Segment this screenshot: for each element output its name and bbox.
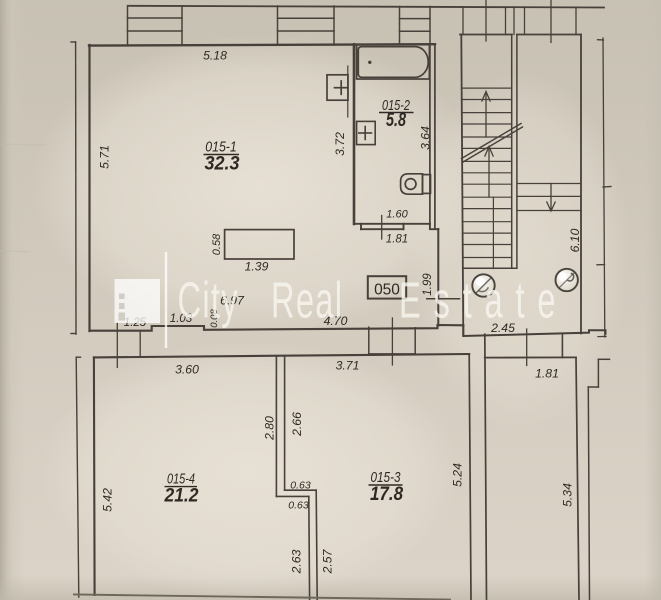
svg-text:1.81: 1.81 — [386, 234, 408, 246]
svg-text:1.60: 1.60 — [386, 209, 408, 221]
svg-text:3.71: 3.71 — [336, 359, 360, 373]
svg-text:5.18: 5.18 — [203, 49, 227, 63]
svg-text:2.66: 2.66 — [290, 412, 304, 437]
svg-text:2.63: 2.63 — [290, 549, 304, 574]
svg-text:0.63: 0.63 — [290, 480, 311, 492]
svg-text:5.24: 5.24 — [451, 463, 465, 487]
svg-text:050: 050 — [374, 282, 400, 299]
svg-text:1.39: 1.39 — [245, 260, 269, 274]
svg-text:5.34: 5.34 — [561, 483, 575, 507]
svg-text:City: City — [178, 272, 239, 329]
svg-text:Estate: Estate — [399, 272, 568, 329]
svg-text:5.42: 5.42 — [101, 488, 115, 512]
svg-text:6.10: 6.10 — [568, 228, 582, 252]
svg-text:17.8: 17.8 — [370, 483, 403, 505]
svg-text:0.63: 0.63 — [288, 500, 309, 512]
svg-text:3.60: 3.60 — [175, 363, 199, 377]
svg-text:32.3: 32.3 — [205, 153, 240, 175]
svg-text:1.81: 1.81 — [535, 367, 559, 381]
svg-text:3.72: 3.72 — [333, 132, 347, 156]
svg-text:5.71: 5.71 — [98, 145, 112, 169]
svg-text:2.57: 2.57 — [321, 548, 335, 574]
svg-text:3.64: 3.64 — [418, 126, 432, 150]
svg-text:Real: Real — [271, 272, 343, 329]
svg-text:0.58: 0.58 — [211, 233, 223, 255]
svg-text:2.80: 2.80 — [263, 416, 277, 441]
svg-text:5.8: 5.8 — [386, 109, 406, 131]
svg-text:21.2: 21.2 — [164, 485, 199, 507]
